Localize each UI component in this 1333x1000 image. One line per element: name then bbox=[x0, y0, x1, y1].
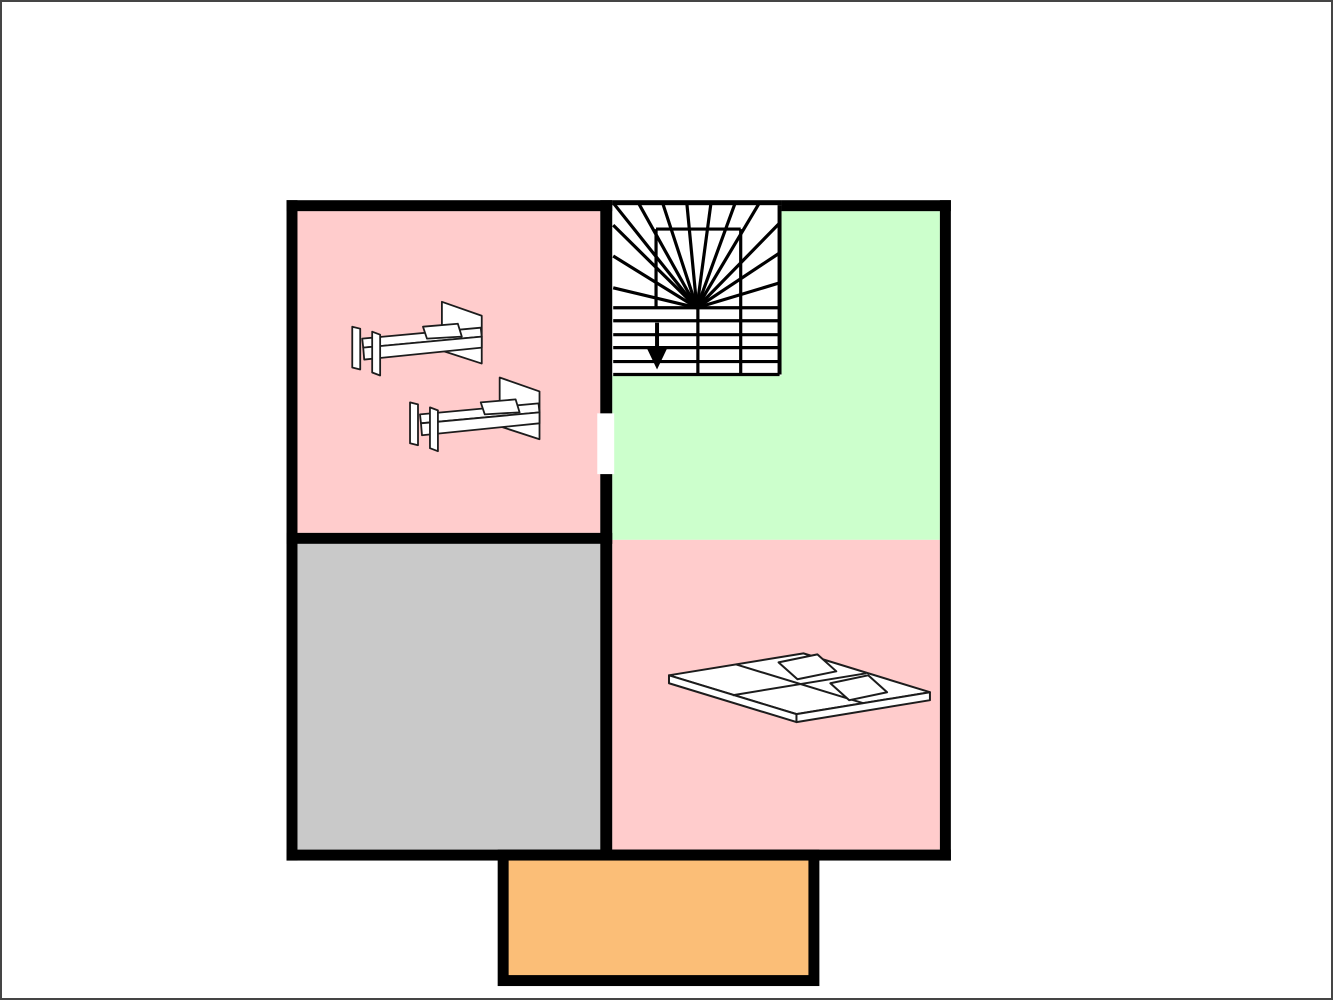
single-bed-pillow bbox=[481, 399, 520, 414]
wall-top-right-segment bbox=[782, 200, 951, 211]
wall-left bbox=[287, 200, 298, 860]
single-bed-foot-slat-inner bbox=[372, 332, 380, 376]
wall-center-vertical bbox=[600, 200, 612, 860]
wall-top-stair-thin bbox=[612, 200, 781, 205]
wall-right bbox=[940, 200, 951, 860]
door-opening bbox=[597, 413, 614, 474]
single-bed-foot-slat-inner bbox=[430, 407, 438, 451]
balcony-floor bbox=[509, 861, 809, 976]
room-room-bottom-left bbox=[297, 544, 600, 850]
wall-middle-horizontal bbox=[287, 533, 613, 544]
floor-plan-canvas bbox=[2, 2, 1331, 998]
single-bed-foot-slat-outer bbox=[410, 402, 418, 445]
room-bedroom-top-left bbox=[297, 211, 600, 533]
wall-top-left-segment bbox=[287, 200, 613, 211]
floor-plan-image bbox=[0, 0, 1333, 1000]
single-bed-foot-slat-outer bbox=[352, 327, 360, 370]
single-bed-pillow bbox=[423, 324, 462, 339]
